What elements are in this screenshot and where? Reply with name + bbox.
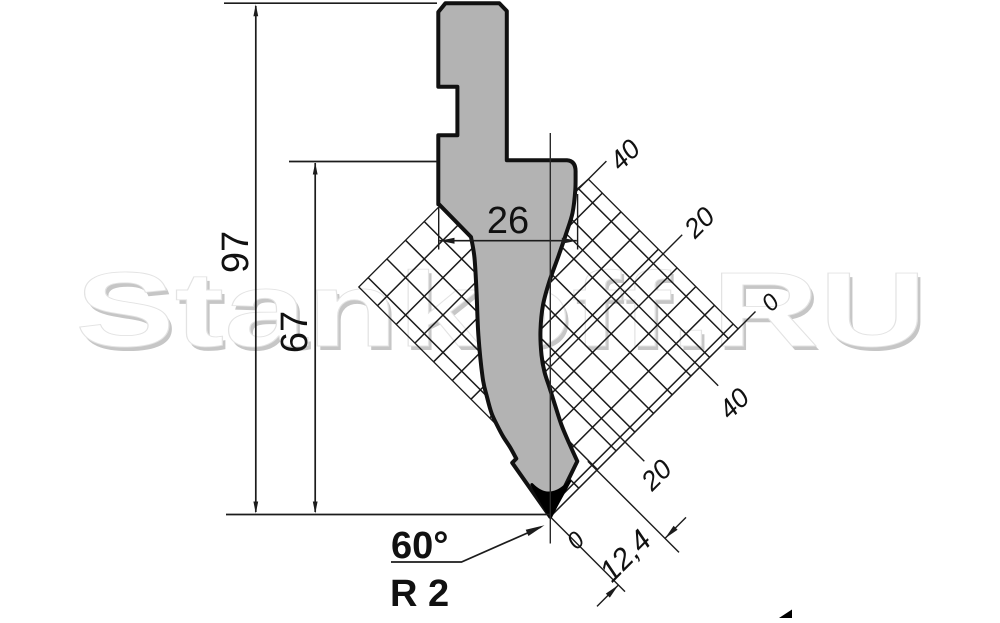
svg-text:97: 97 [215, 231, 257, 273]
svg-text:R 2: R 2 [390, 573, 449, 615]
svg-text:60°: 60° [391, 525, 448, 567]
svg-text:67: 67 [274, 311, 316, 353]
svg-text:26: 26 [487, 200, 529, 242]
